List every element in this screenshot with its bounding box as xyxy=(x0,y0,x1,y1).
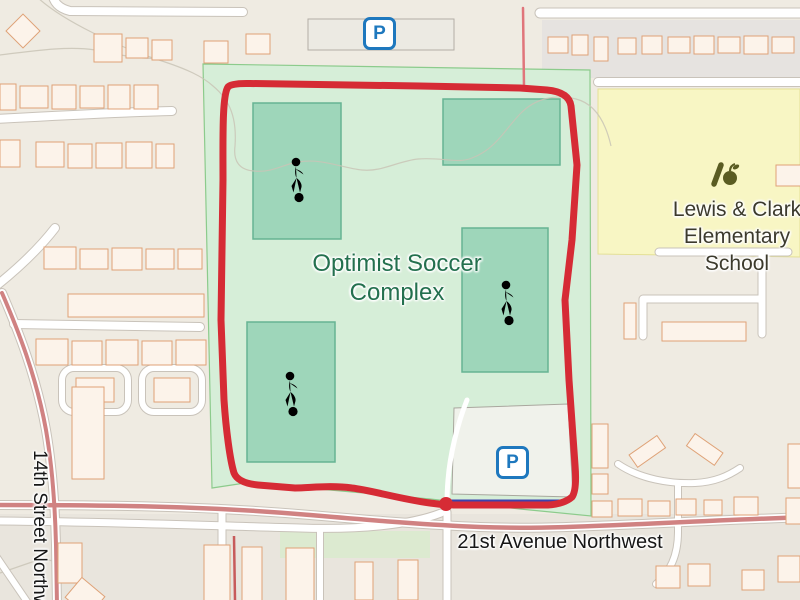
parking-icon: P xyxy=(363,17,396,50)
pitch-4 xyxy=(247,322,335,462)
route-start-dot xyxy=(439,497,453,511)
map-tiles xyxy=(0,0,800,600)
power-line xyxy=(523,8,524,88)
parking-icon-letter: P xyxy=(506,452,519,474)
parking-icon-letter: P xyxy=(373,23,386,45)
pitch-3 xyxy=(462,228,548,372)
pitch-2 xyxy=(443,99,560,165)
school-grounds-area xyxy=(598,89,800,257)
map-viewport[interactable]: Optimist Soccer Complex Lewis & Clark El… xyxy=(0,0,800,600)
parking-icon: P xyxy=(496,446,529,479)
